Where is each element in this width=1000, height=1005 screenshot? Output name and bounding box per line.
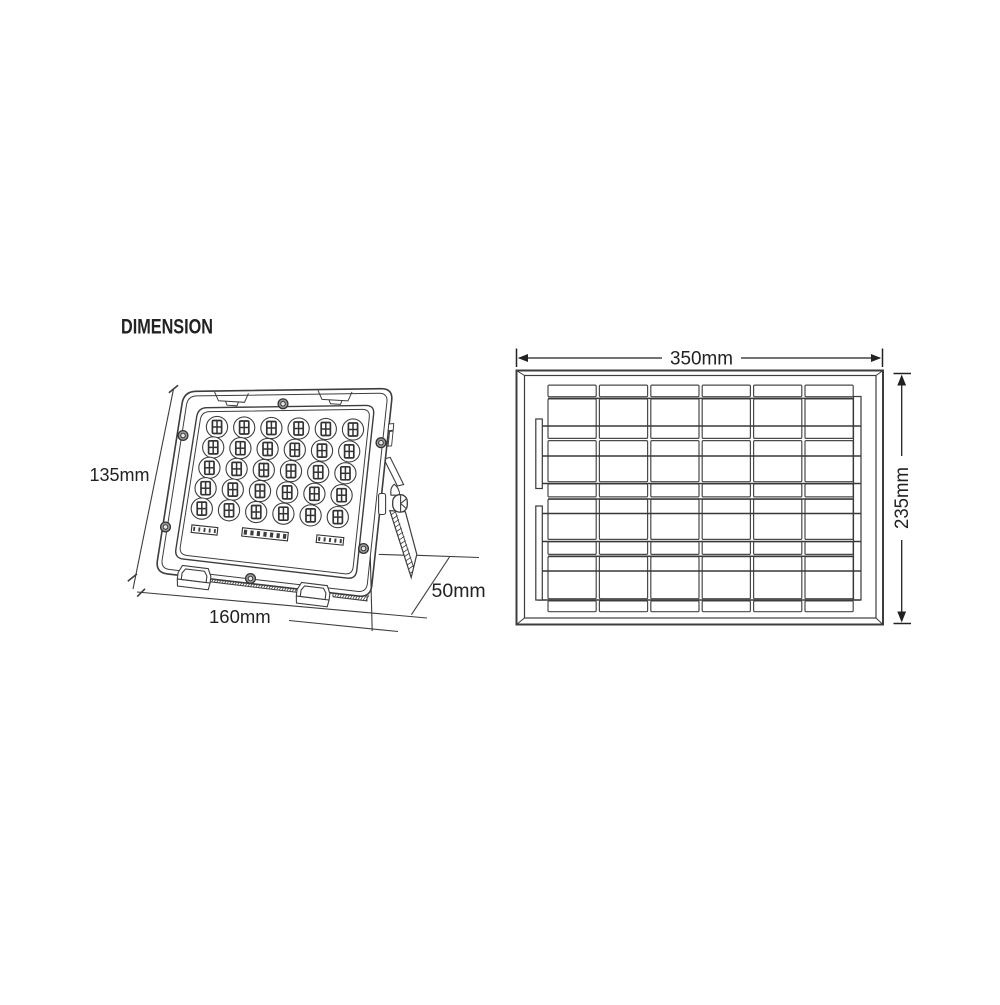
svg-text:DIMENSION: DIMENSION <box>121 316 213 339</box>
svg-text:350mm: 350mm <box>670 349 733 370</box>
svg-text:135mm: 135mm <box>90 465 150 485</box>
svg-text:50mm: 50mm <box>432 580 486 602</box>
svg-text:235mm: 235mm <box>892 467 913 529</box>
svg-text:160mm: 160mm <box>209 606 271 627</box>
